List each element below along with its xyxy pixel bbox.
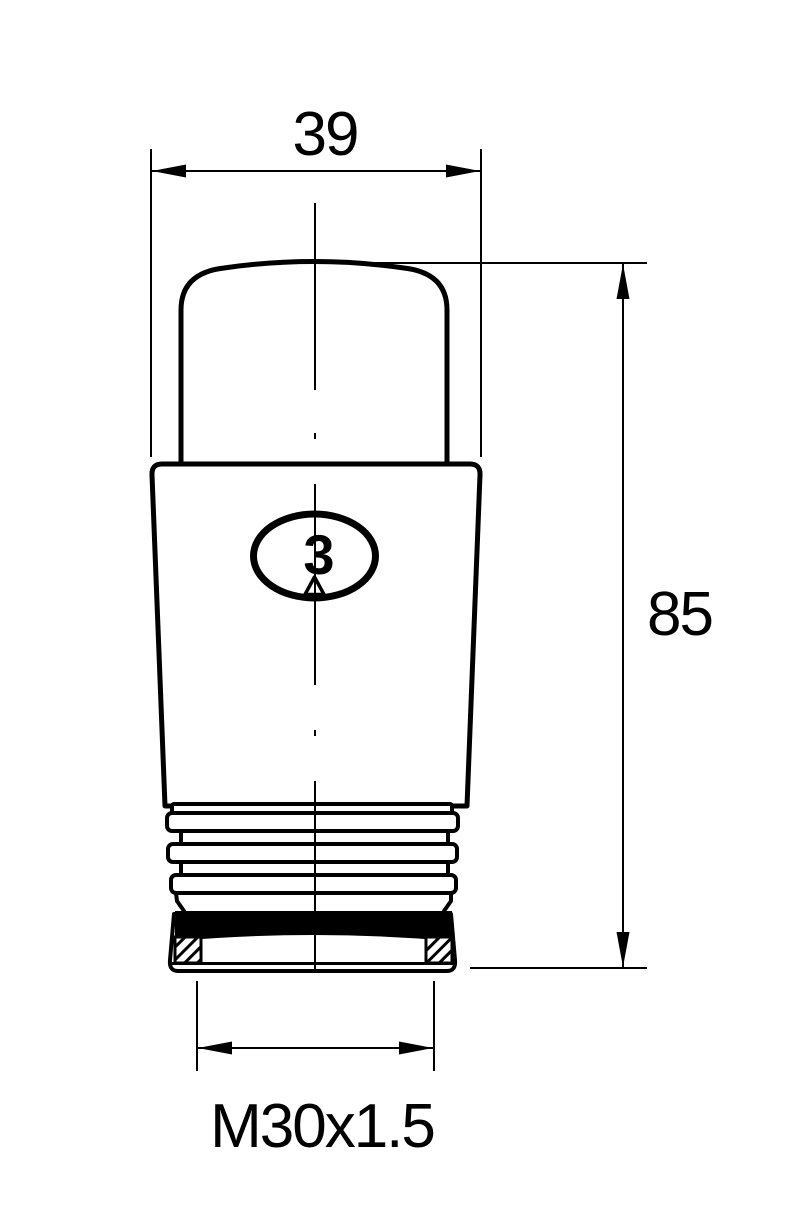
arrowhead-down-icon xyxy=(617,932,630,967)
thread-section-hatch-left xyxy=(175,937,201,963)
dimension-thread: M30x1.5 xyxy=(197,981,434,1161)
setting-number: 3 xyxy=(303,523,334,586)
width-dimension-label: 39 xyxy=(293,100,358,169)
grip-ribs xyxy=(167,804,458,916)
thread-dimension-label: M30x1.5 xyxy=(210,1092,434,1161)
rib-3 xyxy=(171,875,456,893)
technical-drawing: 3 39 85 M30x1.5 xyxy=(0,0,810,1232)
arrowhead-up-icon xyxy=(617,264,630,299)
arrowhead-right-icon xyxy=(446,165,480,178)
thread-section-hatch-right xyxy=(426,937,452,963)
rib-1 xyxy=(167,813,458,831)
rib-2 xyxy=(168,844,457,862)
drawing-canvas: 3 39 85 M30x1.5 xyxy=(0,0,810,1232)
arrowhead-right-icon xyxy=(399,1042,433,1055)
arrowhead-left-icon xyxy=(152,165,186,178)
height-dimension-label: 85 xyxy=(647,580,712,649)
arrowhead-left-icon xyxy=(198,1042,232,1055)
